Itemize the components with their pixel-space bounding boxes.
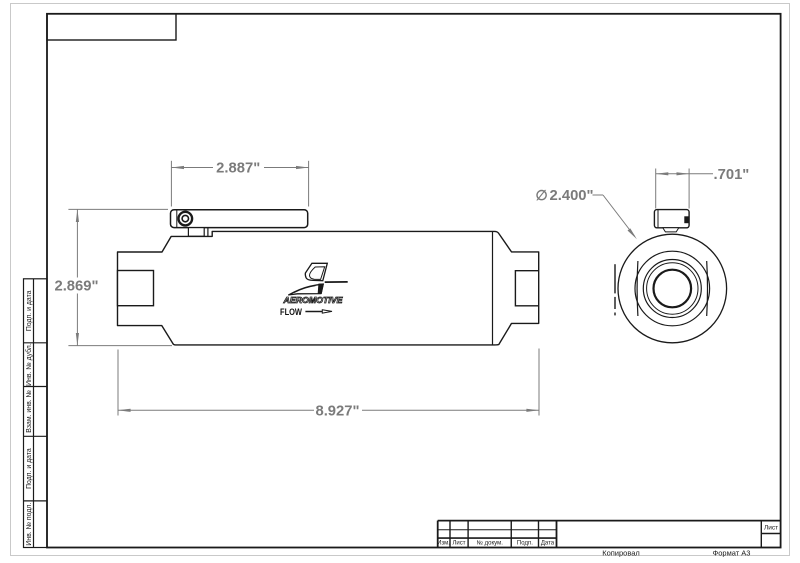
svg-text:.701": .701" — [714, 167, 750, 183]
svg-text:Подп. и дата: Подп. и дата — [26, 448, 33, 489]
svg-text:Изм.: Изм. — [437, 541, 450, 547]
svg-text:FLOW: FLOW — [280, 307, 303, 317]
svg-text:2.869": 2.869" — [54, 279, 98, 295]
svg-text:Подп.: Подп. — [517, 541, 533, 547]
svg-text:Дата: Дата — [541, 541, 555, 547]
svg-text:AEROMOTIVE: AEROMOTIVE — [282, 295, 342, 305]
svg-text:Лист: Лист — [764, 524, 778, 531]
svg-text:8.927": 8.927" — [315, 403, 359, 419]
svg-text:№ докум.: № докум. — [477, 540, 504, 547]
svg-text:2.887": 2.887" — [216, 161, 260, 177]
svg-text:Формат А3: Формат А3 — [713, 549, 751, 558]
svg-text:Взам. инв. №: Взам. инв. № — [26, 390, 33, 433]
svg-text:Копировал: Копировал — [602, 549, 640, 558]
svg-text:Подп. и дата: Подп. и дата — [26, 290, 33, 331]
svg-text:Лист: Лист — [452, 541, 465, 547]
svg-text:Инв. № дубл.: Инв. № дубл. — [25, 343, 33, 386]
svg-text:Инв. № подл.: Инв. № подл. — [26, 503, 33, 546]
svg-text:∅: ∅ — [536, 187, 548, 203]
svg-text:2.400": 2.400" — [550, 188, 594, 204]
